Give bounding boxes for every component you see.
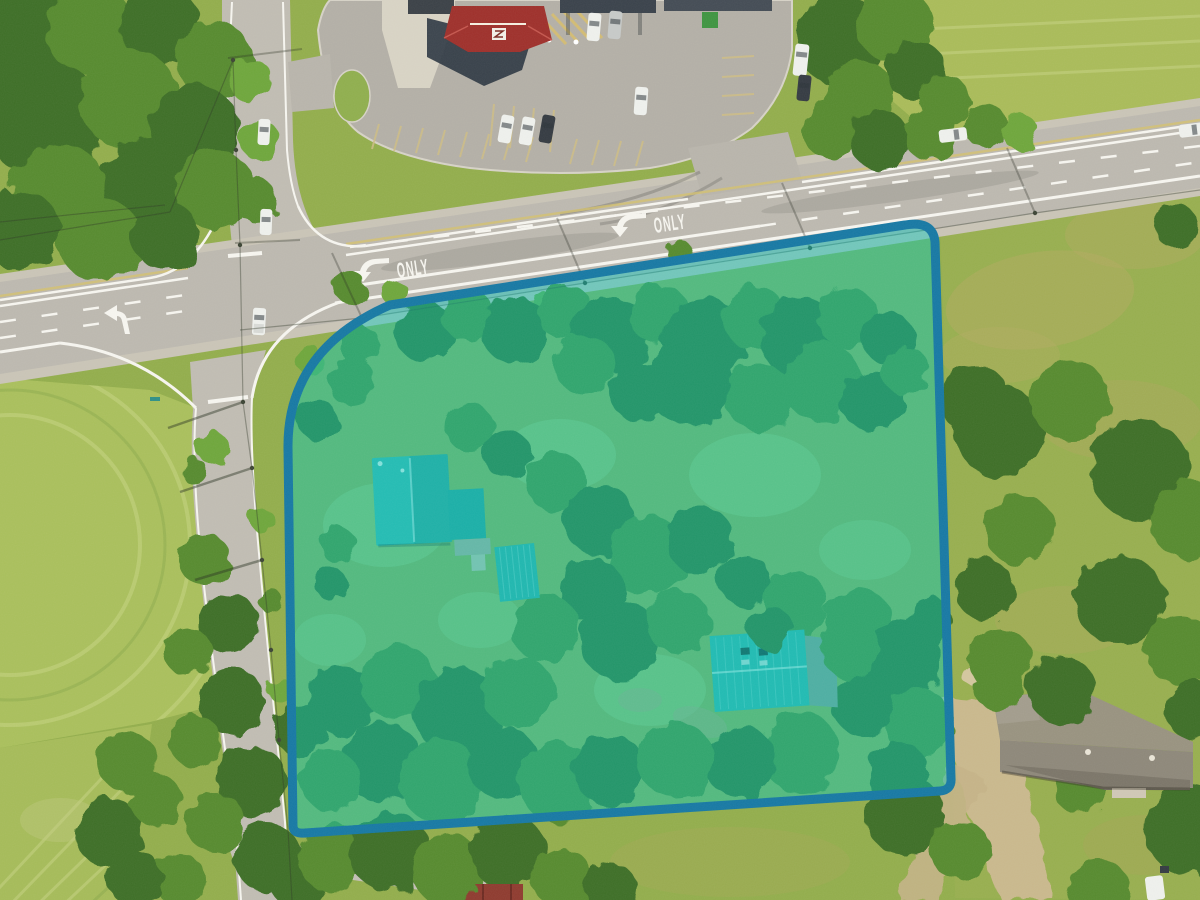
- aerial-photo: ONLY ONLY: [0, 0, 1200, 900]
- photo-grain: [0, 0, 1200, 900]
- aerial-scene: ONLY ONLY: [0, 0, 1200, 900]
